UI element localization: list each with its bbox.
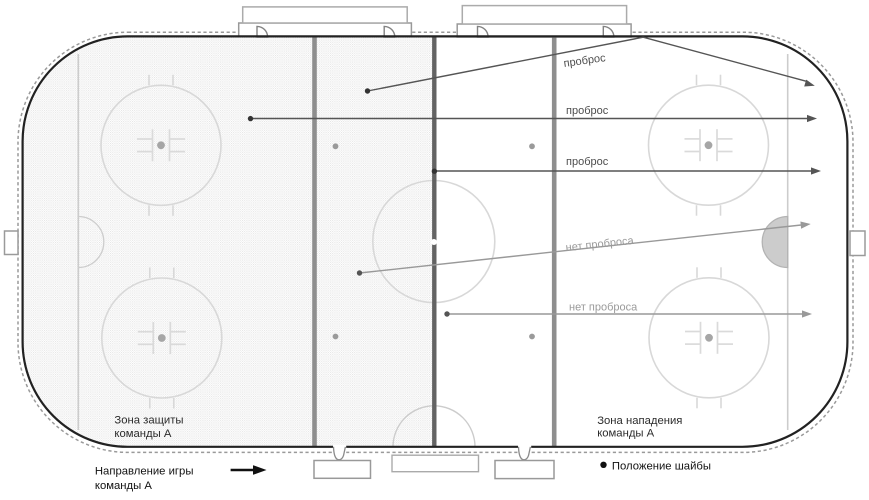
svg-text:команды А: команды А [597,428,654,440]
svg-text:Положение шайбы: Положение шайбы [612,461,711,473]
svg-text:проброс: проброс [566,156,609,168]
svg-text:Зона защиты: Зона защиты [114,414,183,426]
svg-text:команды А: команды А [95,480,152,492]
svg-text:команды А: команды А [114,428,171,440]
svg-text:проброс: проброс [566,105,609,117]
svg-text:Зона нападения: Зона нападения [597,415,682,427]
svg-text:Направление игры: Направление игры [95,466,194,478]
svg-text:нет проброса: нет проброса [569,302,638,314]
